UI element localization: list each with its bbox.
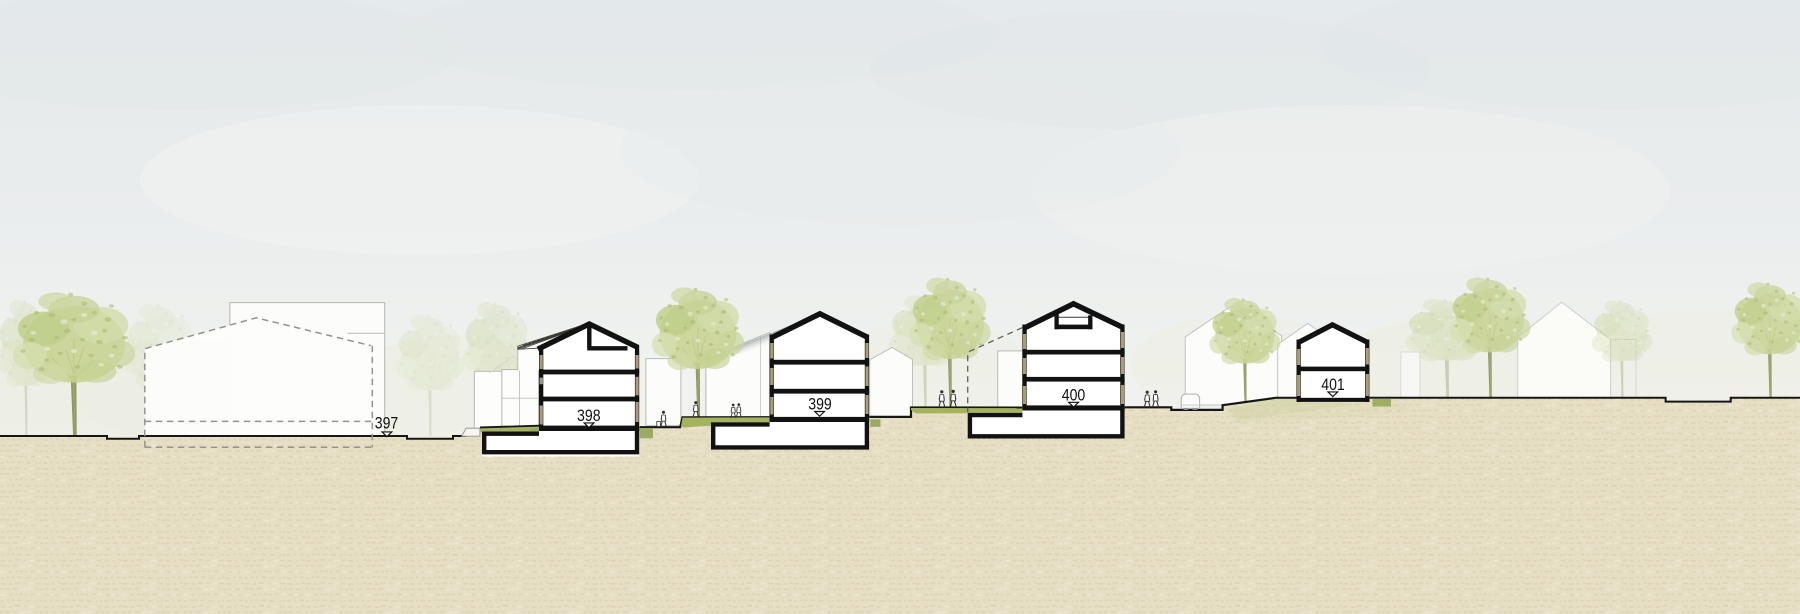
svg-text:399: 399 [808, 395, 832, 413]
svg-text:397: 397 [375, 415, 399, 433]
svg-text:398: 398 [577, 407, 601, 425]
svg-text:400: 400 [1062, 386, 1086, 404]
